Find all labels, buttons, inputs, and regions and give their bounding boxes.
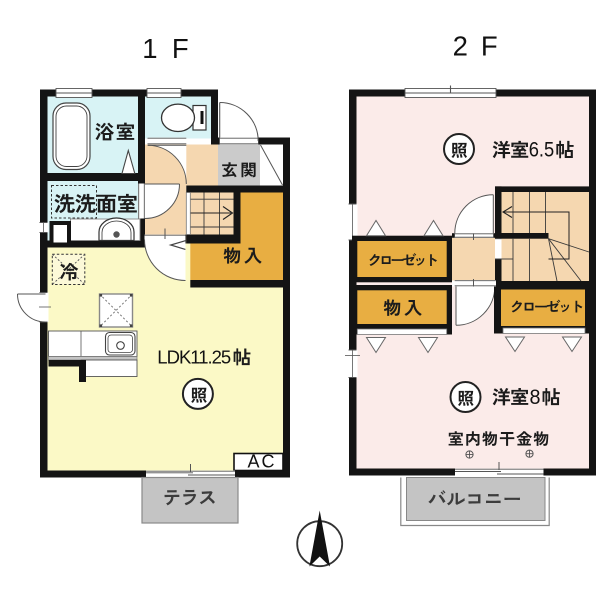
svg-text:F: F [172,33,189,64]
svg-text:8: 8 [530,386,541,409]
svg-text:2: 2 [453,31,468,62]
svg-text:AC: AC [248,451,277,471]
svg-text:6.5: 6.5 [529,139,555,162]
svg-text:1: 1 [142,33,157,64]
svg-text:F: F [481,31,498,62]
svg-text:LDK11.25: LDK11.25 [157,346,231,367]
